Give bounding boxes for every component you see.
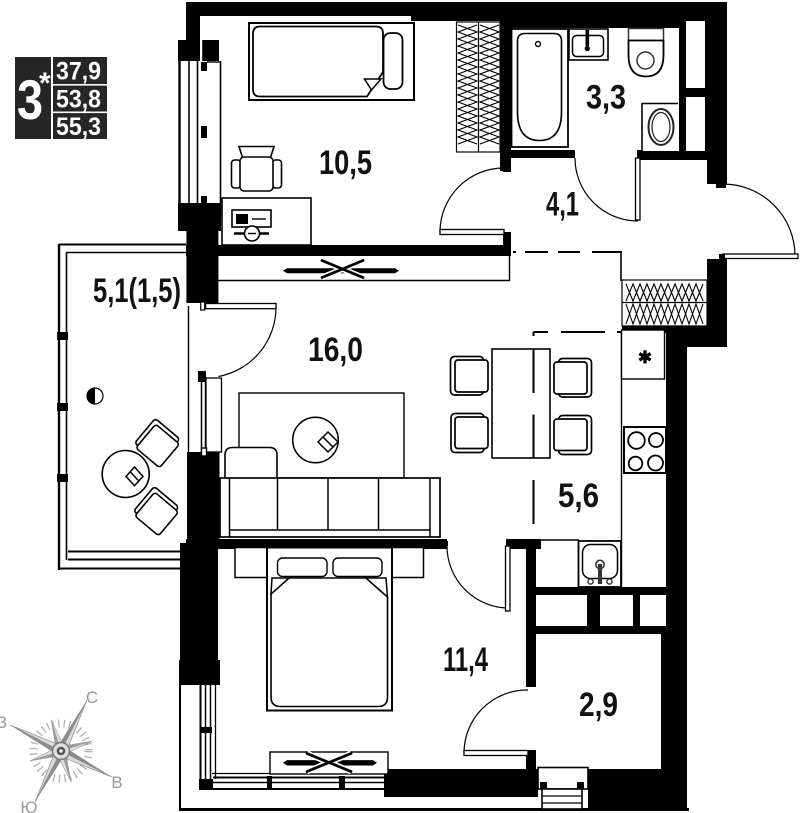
svg-text:11,4: 11,4 (443, 641, 488, 679)
svg-text:37,9: 37,9 (56, 58, 101, 86)
svg-text:З: З (0, 713, 7, 732)
svg-text:53,8: 53,8 (56, 86, 101, 114)
svg-text:Ю: Ю (20, 798, 37, 813)
svg-text:2,9: 2,9 (579, 686, 618, 724)
svg-text:55,3: 55,3 (56, 113, 101, 141)
svg-text:С: С (86, 688, 98, 707)
svg-text:10,5: 10,5 (319, 144, 372, 182)
svg-text:5,1(1,5): 5,1(1,5) (93, 272, 181, 310)
svg-text:*: * (39, 67, 51, 100)
svg-text:✱: ✱ (638, 348, 652, 367)
svg-text:16,0: 16,0 (308, 331, 363, 369)
svg-text:5,6: 5,6 (558, 477, 599, 515)
svg-text:В: В (111, 773, 122, 792)
svg-text:4,1: 4,1 (546, 186, 579, 224)
svg-text:3,3: 3,3 (586, 79, 626, 117)
